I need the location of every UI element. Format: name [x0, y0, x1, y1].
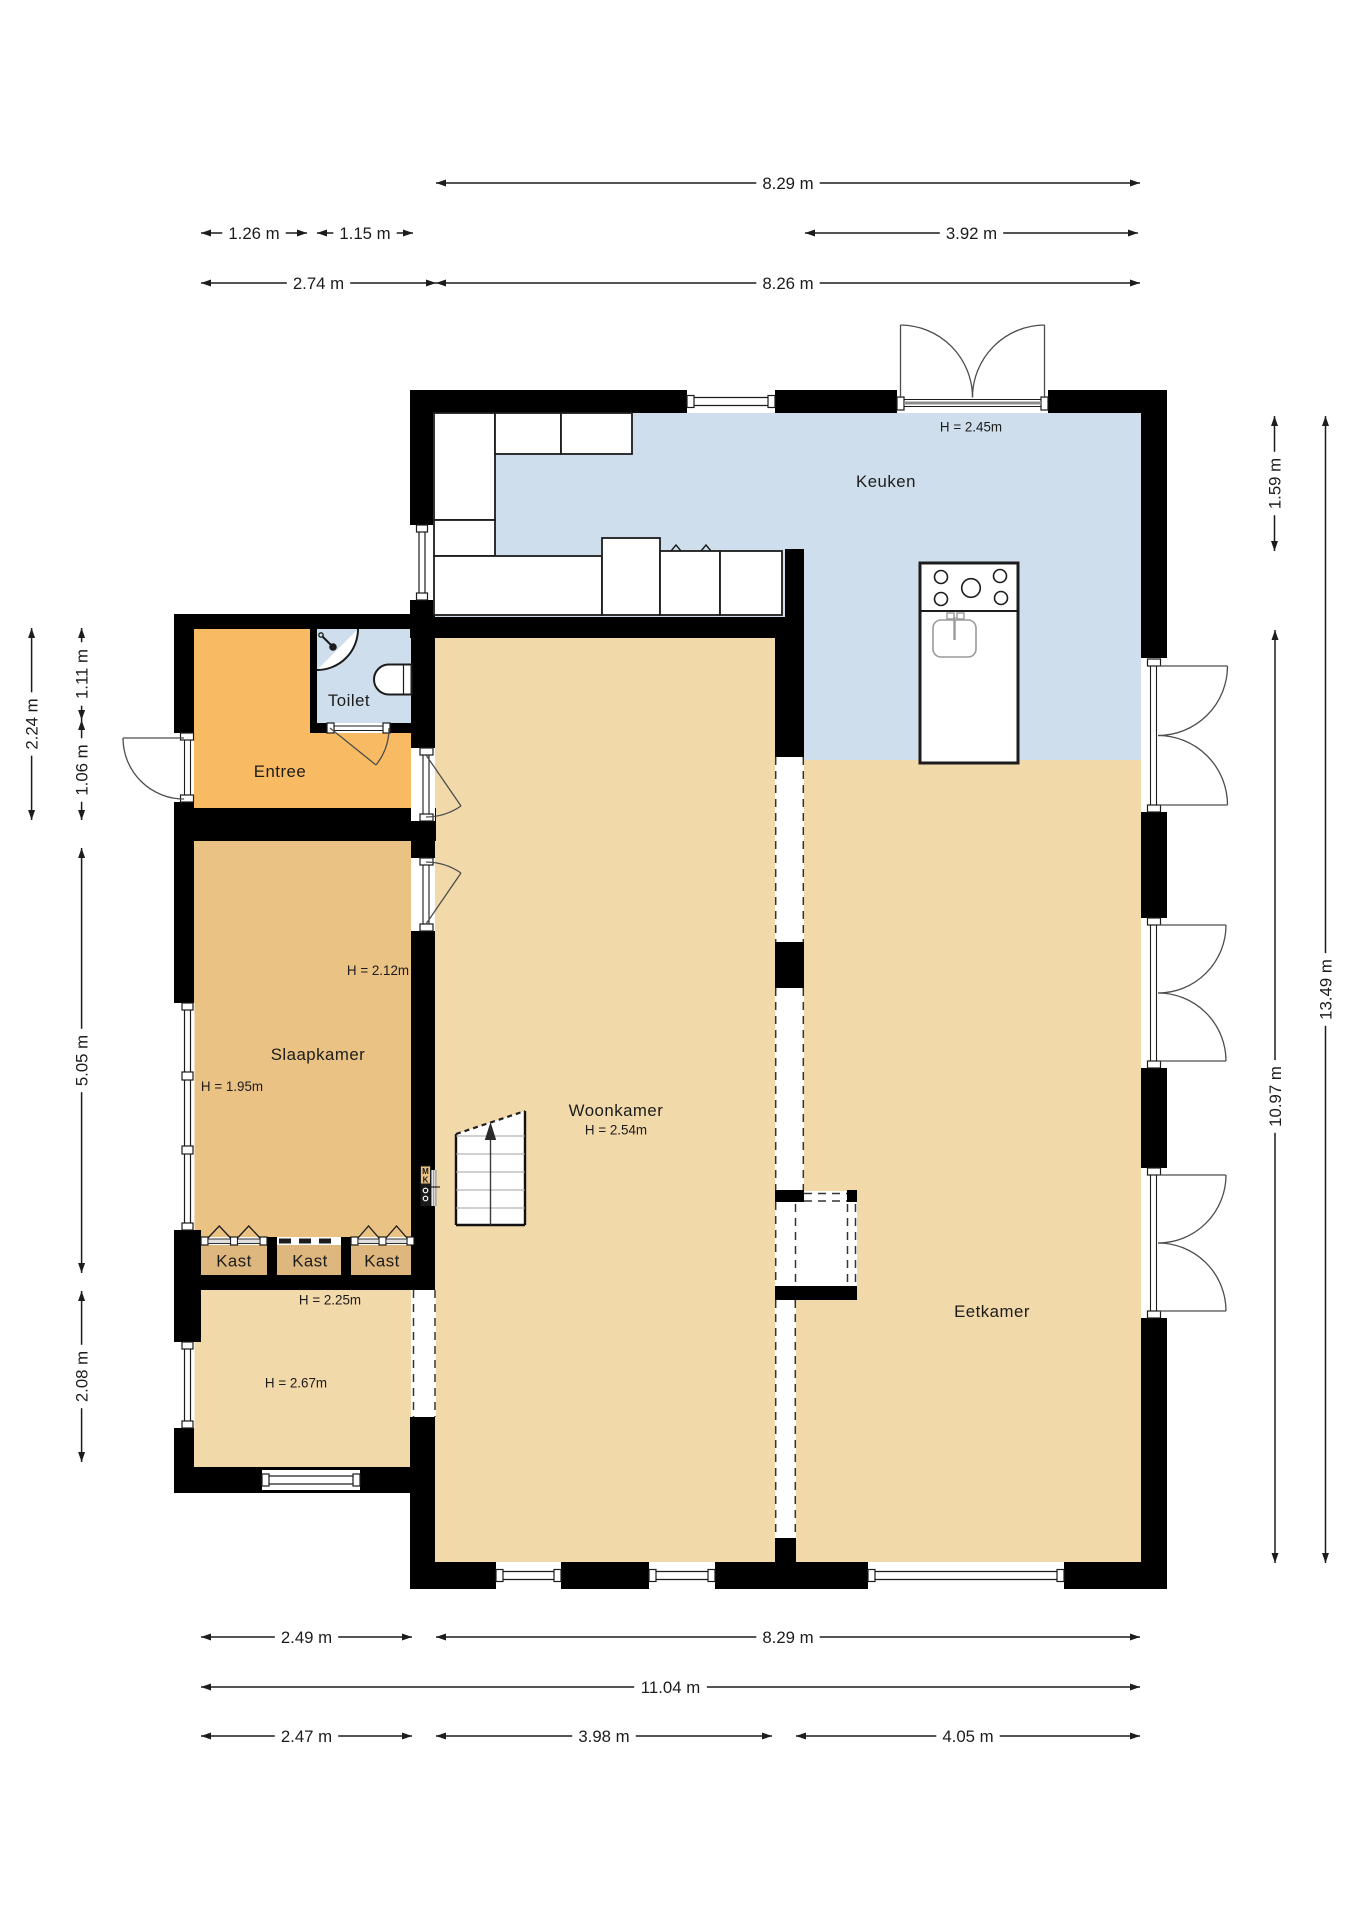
svg-text:4.05 m: 4.05 m: [942, 1727, 993, 1746]
svg-text:1.06 m: 1.06 m: [72, 744, 91, 795]
svg-text:1.11 m: 1.11 m: [72, 649, 91, 699]
svg-text:8.26 m: 8.26 m: [762, 274, 813, 293]
svg-text:2.74 m: 2.74 m: [293, 274, 344, 293]
svg-text:Woonkamer: Woonkamer: [569, 1101, 664, 1120]
svg-text:5.05 m: 5.05 m: [72, 1035, 91, 1086]
svg-text:H = 2.25m: H = 2.25m: [299, 1293, 361, 1308]
svg-text:Kast: Kast: [364, 1252, 400, 1271]
svg-text:K: K: [423, 1176, 429, 1185]
svg-text:Toilet: Toilet: [328, 691, 370, 710]
svg-text:10.97 m: 10.97 m: [1266, 1066, 1285, 1127]
svg-text:2.24 m: 2.24 m: [22, 698, 41, 749]
svg-text:H = 2.45m: H = 2.45m: [940, 420, 1002, 435]
svg-text:Keuken: Keuken: [856, 472, 916, 491]
svg-text:Entree: Entree: [254, 762, 306, 781]
svg-text:1.59 m: 1.59 m: [1265, 458, 1284, 509]
svg-text:11.04 m: 11.04 m: [641, 1678, 700, 1697]
svg-text:2.47 m: 2.47 m: [281, 1727, 332, 1746]
svg-text:Slaapkamer: Slaapkamer: [271, 1045, 366, 1064]
svg-text:Kast: Kast: [292, 1252, 328, 1271]
svg-text:H = 1.95m: H = 1.95m: [201, 1079, 263, 1094]
svg-text:1.26 m: 1.26 m: [228, 224, 279, 243]
svg-text:H = 2.12m: H = 2.12m: [347, 963, 409, 978]
svg-text:Kast: Kast: [216, 1252, 252, 1271]
svg-text:8.29 m: 8.29 m: [762, 1628, 813, 1647]
svg-text:2.49 m: 2.49 m: [281, 1628, 332, 1647]
svg-text:1.15 m: 1.15 m: [339, 224, 390, 243]
svg-text:Eetkamer: Eetkamer: [954, 1302, 1030, 1321]
svg-text:8.29 m: 8.29 m: [762, 174, 813, 193]
svg-text:3.92 m: 3.92 m: [946, 224, 997, 243]
svg-text:3.98 m: 3.98 m: [578, 1727, 629, 1746]
svg-text:H = 2.67m: H = 2.67m: [265, 1376, 327, 1391]
svg-text:2.08 m: 2.08 m: [72, 1351, 91, 1402]
svg-text:H = 2.54m: H = 2.54m: [585, 1123, 647, 1138]
svg-text:13.49 m: 13.49 m: [1316, 959, 1335, 1020]
